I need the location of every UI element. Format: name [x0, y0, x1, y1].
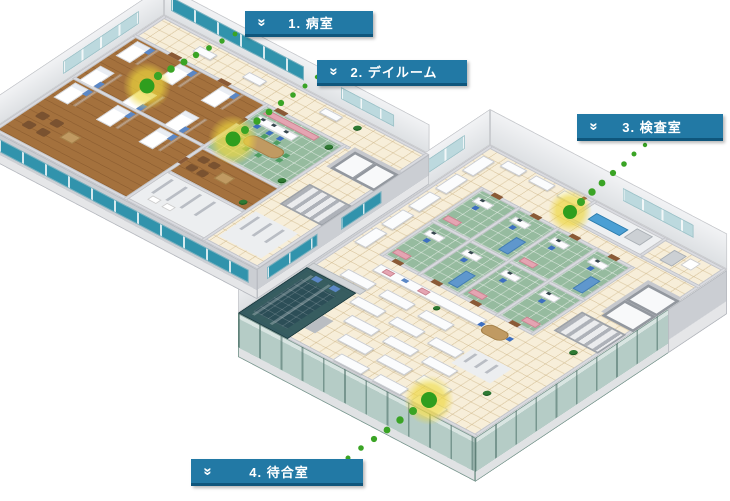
double-chevron-down-icon: » — [587, 119, 602, 133]
callout-exam-room[interactable]: » 3. 検査室 — [577, 114, 723, 141]
double-chevron-down-icon: » — [255, 16, 270, 30]
callout-label: 3. 検査室 — [601, 117, 713, 136]
callout-label: 4. 待合室 — [215, 462, 353, 481]
double-chevron-down-icon: » — [201, 464, 216, 478]
callout-label: 1. 病室 — [269, 13, 363, 32]
callout-label: 2. デイルーム — [341, 62, 457, 81]
hospital-floor-guide-illustration: » 1. 病室 » 2. デイルーム » 3. 検査室 » 4. 待合室 — [0, 0, 730, 501]
callout-patient-room[interactable]: » 1. 病室 — [245, 11, 373, 37]
double-chevron-down-icon: » — [327, 65, 342, 79]
callout-waiting-room[interactable]: » 4. 待合室 — [191, 459, 363, 486]
callout-day-room[interactable]: » 2. デイルーム — [317, 60, 467, 86]
